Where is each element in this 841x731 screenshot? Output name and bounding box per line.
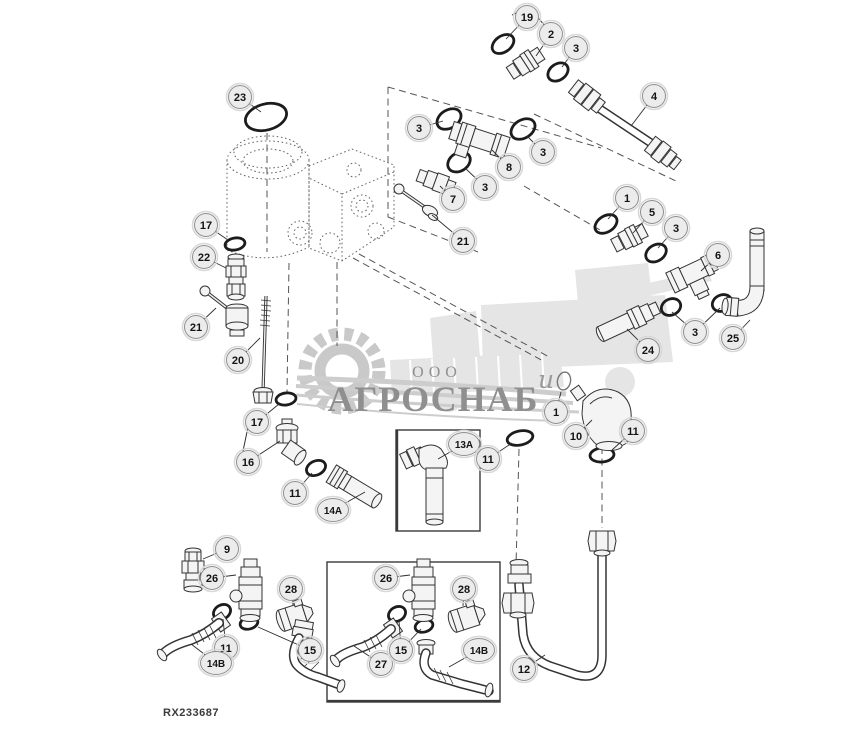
callout-label: 19 (521, 12, 533, 24)
figure-code: RX233687 (163, 707, 219, 719)
callout-2: 2 (538, 21, 565, 48)
callout-label: 10 (570, 431, 582, 443)
callout-label: 22 (198, 252, 210, 264)
callout-label: 28 (458, 584, 470, 596)
callout-11: 11 (282, 480, 309, 507)
callout-label: 9 (224, 544, 230, 556)
o-ring-1 (592, 211, 621, 237)
callout-15: 15 (388, 637, 415, 664)
callout-label: 17 (251, 417, 263, 429)
callout-label: 28 (285, 584, 297, 596)
fitting-22 (226, 254, 246, 300)
callout-3: 3 (563, 35, 590, 62)
callout-16: 16 (235, 449, 262, 476)
callout-21: 21 (183, 314, 210, 341)
callout-label: 20 (232, 355, 244, 367)
callout-label: 1 (553, 407, 559, 419)
pipe-12 (502, 531, 616, 676)
callout-label: 1 (624, 193, 630, 205)
callout-20: 20 (225, 347, 252, 374)
callout-label: 11 (627, 426, 639, 438)
callout-3: 3 (406, 115, 433, 142)
callout-label: 7 (450, 194, 456, 206)
elbow-fitting-16 (276, 419, 309, 467)
callout-label: 24 (642, 345, 655, 357)
o-ring-11 (304, 457, 328, 478)
callout-label: 2 (548, 29, 554, 41)
callout-label: 23 (234, 92, 246, 104)
callout-label: 14B (207, 659, 225, 670)
valve-26 (230, 559, 262, 622)
manifold-block-outline (227, 136, 394, 261)
callout-3: 3 (663, 215, 690, 242)
callout-label: 3 (416, 123, 422, 135)
callout-label: 21 (457, 236, 469, 248)
callout-14A: 14A (316, 497, 351, 524)
callout-19: 19 (514, 4, 541, 31)
callout-4: 4 (641, 83, 668, 110)
callout-label: 11 (289, 488, 301, 500)
callout-label: 4 (651, 91, 658, 103)
callout-23: 23 (227, 84, 254, 111)
watermark-brand: АГРОСНАБ (328, 379, 539, 419)
callout-1: 1 (543, 399, 570, 426)
callout-label: 25 (727, 333, 739, 345)
callout-label: 15 (395, 645, 407, 657)
callout-label: 26 (206, 573, 218, 585)
callout-21: 21 (450, 228, 477, 255)
callout-28: 28 (451, 576, 478, 603)
callout-26: 26 (373, 565, 400, 592)
callout-label: 11 (482, 454, 494, 466)
callout-3: 3 (472, 174, 499, 201)
bolt-20 (253, 296, 273, 403)
callout-label: 3 (540, 147, 546, 159)
callout-label: 26 (380, 573, 392, 585)
callout-label: 14A (324, 506, 342, 517)
callout-label: 3 (692, 327, 698, 339)
callout-label: 14B (470, 646, 488, 657)
o-ring-3 (507, 114, 539, 143)
elbow-fitting-13a (399, 444, 447, 525)
callout-label: 17 (200, 220, 212, 232)
callout-label: 16 (242, 457, 254, 469)
watermark-script: и (538, 365, 554, 394)
callout-label: 21 (190, 322, 202, 334)
callout-label: 3 (573, 43, 579, 55)
callout-label: 13A (455, 440, 473, 451)
callout-28: 28 (278, 576, 305, 603)
callout-5: 5 (639, 199, 666, 226)
o-ring-3 (544, 59, 571, 85)
o-ring-3 (642, 240, 669, 265)
callout-17: 17 (244, 409, 271, 436)
callout-24: 24 (635, 337, 662, 364)
callout-label: 3 (482, 182, 488, 194)
callout-14B: 14B (199, 650, 234, 677)
callout-7: 7 (440, 186, 467, 213)
callout-26: 26 (199, 565, 226, 592)
callout-17: 17 (193, 212, 220, 239)
parts-diagram: ООО АГРОСНАБ и (0, 0, 841, 731)
valve-26-alt (403, 559, 435, 622)
callout-label: 6 (715, 250, 721, 262)
o-ring-23 (242, 99, 289, 135)
callout-22: 22 (191, 244, 218, 271)
callout-3: 3 (682, 319, 709, 346)
callout-label: 12 (518, 664, 530, 676)
callout-3: 3 (530, 139, 557, 166)
callout-10: 10 (563, 423, 590, 450)
callout-9: 9 (214, 536, 241, 563)
callout-label: 27 (375, 659, 387, 671)
o-ring-19 (489, 31, 518, 58)
callout-25: 25 (720, 325, 747, 352)
callout-label: 8 (506, 162, 512, 174)
callout-label: 3 (673, 223, 679, 235)
callout-11: 11 (475, 446, 502, 473)
callout-label: 15 (304, 645, 316, 657)
diagram-canvas: ООО АГРОСНАБ и (0, 0, 841, 731)
callout-14B: 14B (462, 637, 497, 664)
callout-6: 6 (705, 242, 732, 269)
callout-8: 8 (496, 154, 523, 181)
callout-1: 1 (614, 185, 641, 212)
elbow-tube-25 (721, 228, 764, 316)
callout-11: 11 (620, 418, 647, 445)
callout-15: 15 (297, 637, 324, 664)
callout-label: 5 (649, 207, 655, 219)
callout-12: 12 (511, 656, 538, 683)
